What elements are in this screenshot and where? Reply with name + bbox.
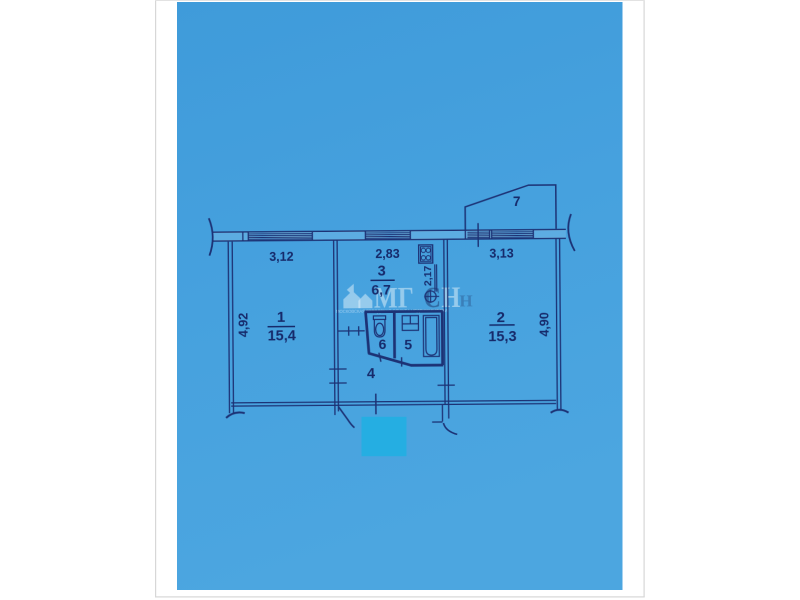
svg-text:15,4: 15,4 [268, 328, 296, 344]
svg-text:15,3: 15,3 [488, 329, 516, 345]
svg-text:Н: Н [459, 291, 472, 310]
svg-text:5: 5 [404, 336, 412, 352]
svg-text:6,7: 6,7 [371, 282, 391, 298]
svg-text:2,17: 2,17 [422, 265, 434, 286]
svg-text:3,13: 3,13 [489, 246, 513, 260]
svg-text:7: 7 [513, 194, 521, 209]
svg-text:3,12: 3,12 [269, 250, 293, 264]
svg-text:1: 1 [277, 309, 285, 326]
svg-text:6: 6 [379, 336, 387, 352]
svg-text:2: 2 [497, 309, 505, 326]
svg-text:4,92: 4,92 [236, 313, 250, 337]
svg-text:3: 3 [378, 263, 386, 279]
svg-text:4,90: 4,90 [537, 312, 551, 336]
svg-text:2,83: 2,83 [375, 247, 399, 261]
svg-text:4: 4 [367, 366, 375, 382]
